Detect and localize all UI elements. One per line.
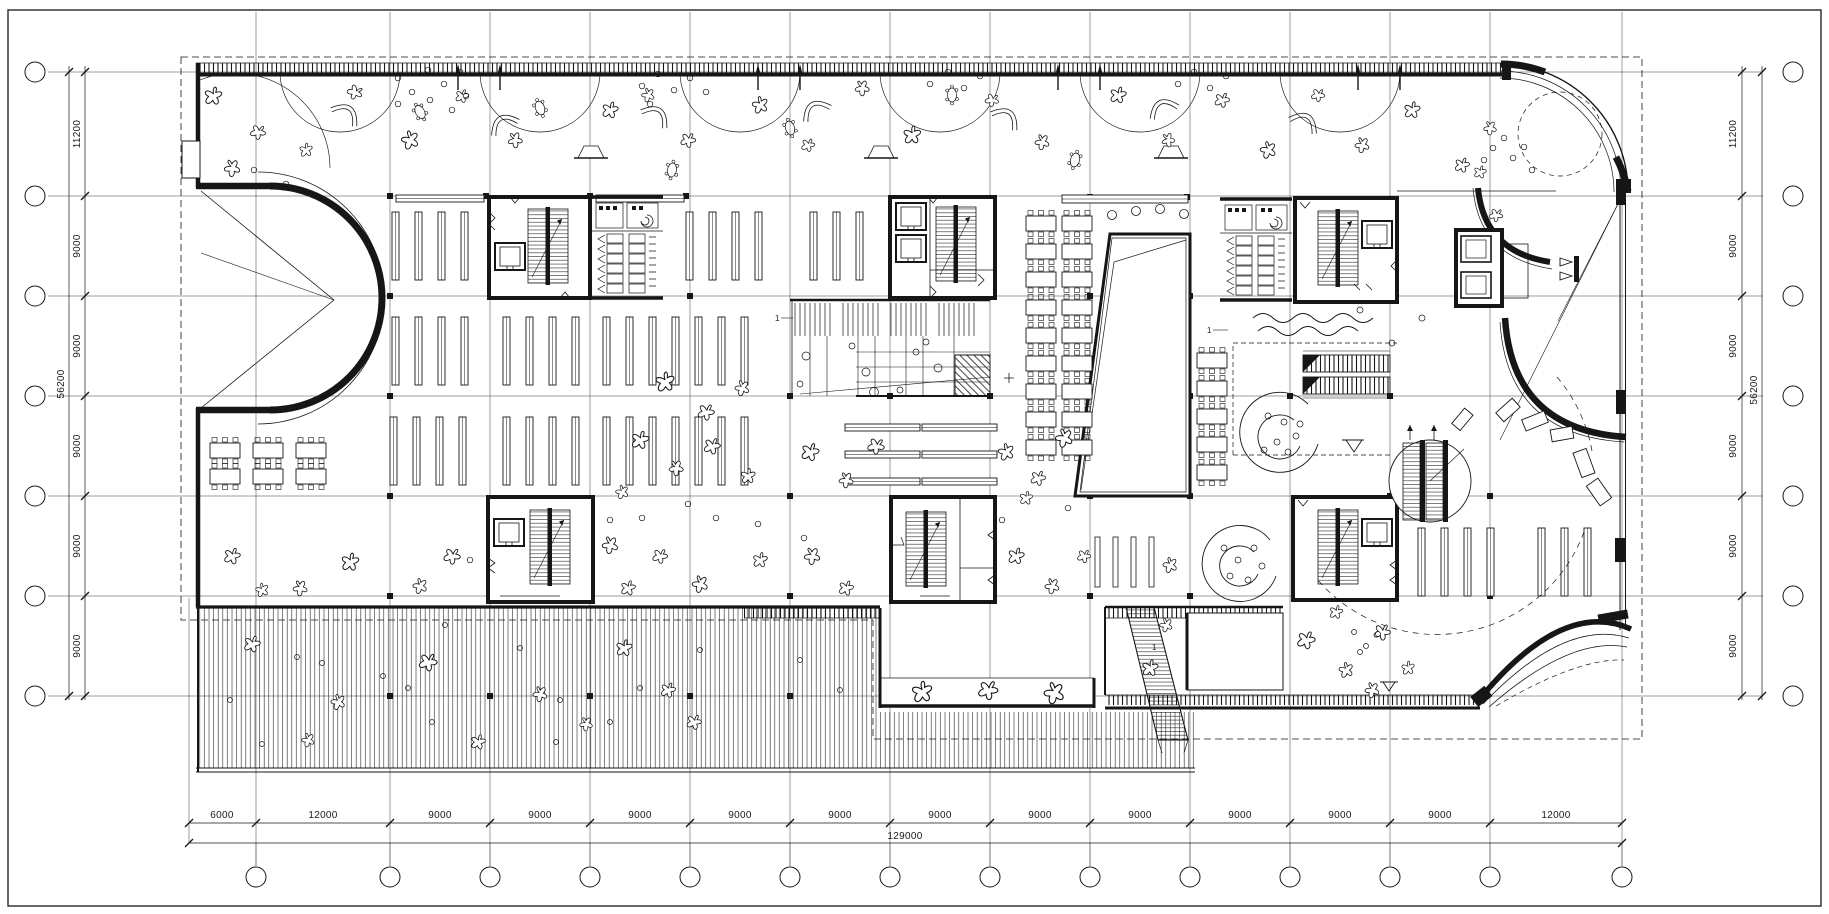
water-feature <box>1253 314 1373 336</box>
reading-tables-center <box>1026 211 1092 461</box>
grid-bubbles-left <box>25 62 45 706</box>
d-shaped-hall <box>196 172 384 424</box>
grid-bubbles-right <box>1783 62 1803 706</box>
washroom-1 <box>591 197 663 298</box>
spiral-planter-2 <box>1202 525 1276 601</box>
stacks-southeast <box>1418 528 1591 596</box>
dimension-label: 9000 <box>1328 810 1352 821</box>
dimension-label: 12000 <box>308 810 337 821</box>
dimension-label: 9000 <box>1728 534 1739 558</box>
dimension-label: 9000 <box>72 434 83 458</box>
northeast-canopy <box>1500 63 1631 193</box>
stacks-row-2 <box>392 317 748 385</box>
dimension-label: 9000 <box>72 334 83 358</box>
dimension-label: 9000 <box>1128 810 1152 821</box>
stool-circles <box>1108 205 1189 220</box>
shrub-bushes <box>410 85 1084 181</box>
dimension-label: 9000 <box>728 810 752 821</box>
grid-bubbles-bottom <box>246 867 1632 887</box>
dimension-label: 9000 <box>1728 234 1739 258</box>
stacks-small-group <box>1095 537 1154 587</box>
dimension-total-label: 129000 <box>887 831 922 842</box>
stacks-row-1 <box>392 212 863 280</box>
core-stair-5 <box>891 497 995 602</box>
floor-plan-svg: 1 1 1 11200 9000 9000 9000 9000 9000 562… <box>0 0 1829 914</box>
stacks-row-3 <box>390 417 748 485</box>
dimension-label: 9000 <box>1428 810 1452 821</box>
stair-tag-1: 1 <box>775 314 780 323</box>
west-wall <box>182 63 200 607</box>
core-stair-2 <box>890 197 995 298</box>
dimension-right: 11200 9000 9000 9000 9000 9000 56200 <box>1728 62 1803 706</box>
dimension-left: 11200 9000 9000 9000 9000 9000 56200 <box>25 62 89 706</box>
dimension-label: 9000 <box>628 810 652 821</box>
dimension-label: 9000 <box>528 810 552 821</box>
core-stair-6 <box>488 497 593 602</box>
dimension-total-label: 56200 <box>1749 375 1760 404</box>
stair-tag-3: 1 <box>1152 643 1157 652</box>
dimension-label: 9000 <box>72 534 83 558</box>
dimension-label: 9000 <box>1728 434 1739 458</box>
drawing-sheet: 1 1 1 11200 9000 9000 9000 9000 9000 562… <box>0 0 1829 914</box>
dimension-label: 9000 <box>928 810 952 821</box>
dimension-label: 9000 <box>72 634 83 658</box>
lectern <box>1560 256 1579 282</box>
garden-pedestals <box>574 146 1188 158</box>
reading-tables-southwest <box>210 438 326 490</box>
dimension-total-label: 56200 <box>56 369 67 398</box>
leaf-canopy <box>1470 609 1631 707</box>
dimension-label: 9000 <box>72 234 83 258</box>
dimension-label: 12000 <box>1541 810 1570 821</box>
dimension-label: 9000 <box>1028 810 1052 821</box>
core-stair-3 <box>1295 198 1397 302</box>
dimension-label: 9000 <box>1228 810 1252 821</box>
core-stair-1 <box>489 197 590 298</box>
dimension-label: 9000 <box>1728 634 1739 658</box>
dimension-label: 9000 <box>1728 334 1739 358</box>
dimension-label: 11200 <box>1728 120 1739 149</box>
deck-courtyard <box>1187 613 1283 690</box>
dimension-label: 11200 <box>72 120 83 149</box>
stacks-horizontal <box>845 424 997 485</box>
dimension-label: 6000 <box>210 810 234 821</box>
grand-stair <box>790 300 1014 397</box>
circular-escalator <box>1389 425 1471 522</box>
reading-tables-east <box>1197 348 1227 486</box>
dimension-label: 9000 <box>428 810 452 821</box>
twin-elevator-core <box>1456 230 1528 306</box>
stair-tag-2: 1 <box>1207 326 1212 335</box>
escalator-pair <box>1303 351 1390 398</box>
south-decks <box>196 607 1480 772</box>
spiral-planter-1 <box>1240 392 1318 472</box>
washroom-2 <box>1220 199 1292 300</box>
north-curtain-wall <box>196 63 1508 90</box>
dimension-label: 9000 <box>828 810 852 821</box>
garden-benches <box>329 94 1322 138</box>
core-stair-4 <box>1293 497 1397 600</box>
dimension-bottom: 6000 12000 9000 9000 9000 9000 9000 9000… <box>185 810 1632 887</box>
cores <box>488 197 1528 602</box>
